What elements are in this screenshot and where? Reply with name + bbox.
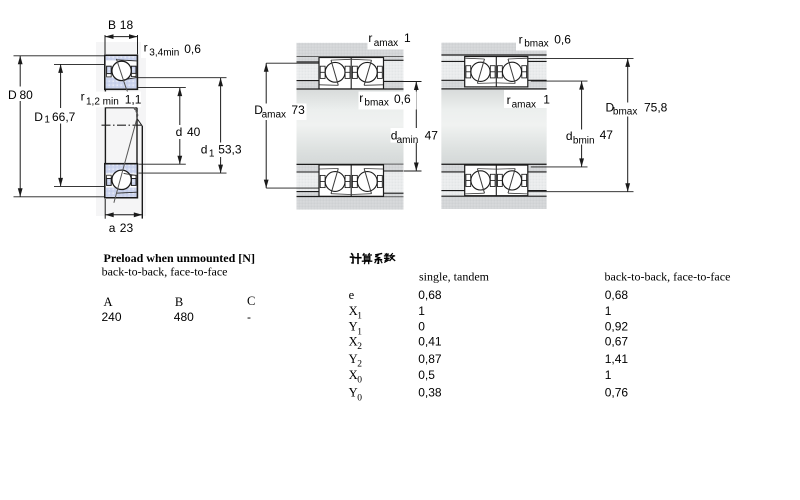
svg-text:bmin: bmin bbox=[573, 136, 595, 147]
svg-text:d: d bbox=[176, 125, 183, 139]
svg-text:amax: amax bbox=[512, 99, 536, 110]
svg-text:-: - bbox=[247, 310, 251, 324]
svg-text:bmax: bmax bbox=[524, 39, 548, 50]
svg-text:3,4min: 3,4min bbox=[149, 47, 179, 58]
svg-text:a: a bbox=[109, 221, 116, 235]
svg-text:r: r bbox=[368, 31, 372, 45]
svg-text:0,68: 0,68 bbox=[418, 288, 442, 302]
svg-text:0,41: 0,41 bbox=[418, 335, 442, 349]
svg-text:40: 40 bbox=[187, 125, 201, 139]
svg-text:1: 1 bbox=[357, 327, 362, 337]
svg-text:240: 240 bbox=[102, 310, 122, 324]
svg-text:r: r bbox=[507, 93, 511, 107]
svg-text:1: 1 bbox=[209, 148, 215, 159]
svg-text:80: 80 bbox=[20, 88, 34, 102]
svg-text:r: r bbox=[81, 90, 85, 104]
svg-text:B: B bbox=[108, 18, 116, 32]
svg-text:bmax: bmax bbox=[613, 107, 637, 118]
svg-text:1: 1 bbox=[605, 304, 612, 318]
svg-text:B: B bbox=[175, 295, 183, 309]
svg-text:amin: amin bbox=[397, 135, 419, 146]
svg-text:75,8: 75,8 bbox=[644, 100, 668, 114]
svg-text:r: r bbox=[144, 41, 148, 55]
svg-text:0,92: 0,92 bbox=[605, 320, 629, 334]
svg-text:53,3: 53,3 bbox=[218, 143, 242, 157]
svg-text:0: 0 bbox=[357, 376, 362, 386]
svg-text:0,38: 0,38 bbox=[418, 386, 442, 400]
svg-text:1: 1 bbox=[543, 93, 550, 107]
svg-text:X: X bbox=[349, 335, 358, 349]
svg-text:back-to-back, face-to-face: back-to-back, face-to-face bbox=[605, 270, 731, 284]
svg-text:e: e bbox=[349, 288, 355, 302]
svg-text:1: 1 bbox=[44, 115, 50, 126]
svg-text:Y: Y bbox=[349, 386, 358, 400]
svg-text:1,1: 1,1 bbox=[125, 93, 142, 107]
svg-text:0,6: 0,6 bbox=[554, 32, 571, 46]
svg-text:0,67: 0,67 bbox=[605, 335, 629, 349]
svg-text:0,5: 0,5 bbox=[418, 368, 435, 382]
svg-text:1,41: 1,41 bbox=[605, 352, 629, 366]
svg-text:73: 73 bbox=[291, 103, 305, 117]
svg-text:bmax: bmax bbox=[364, 98, 388, 109]
svg-text:back-to-back, face-to-face: back-to-back, face-to-face bbox=[102, 264, 228, 278]
svg-text:0: 0 bbox=[357, 393, 362, 403]
svg-text:0,6: 0,6 bbox=[394, 92, 411, 106]
svg-text:Preload when unmounted [N]: Preload when unmounted [N] bbox=[104, 251, 255, 265]
svg-text:X: X bbox=[349, 304, 358, 318]
svg-text:1: 1 bbox=[418, 304, 425, 318]
svg-text:X: X bbox=[349, 368, 358, 382]
svg-text:r: r bbox=[519, 32, 523, 46]
svg-text:A: A bbox=[104, 295, 113, 309]
svg-text:D: D bbox=[34, 110, 43, 124]
svg-text:r: r bbox=[359, 91, 363, 105]
svg-text:amax: amax bbox=[262, 110, 286, 121]
svg-text:47: 47 bbox=[600, 128, 614, 142]
svg-text:23: 23 bbox=[120, 221, 134, 235]
svg-text:C: C bbox=[247, 294, 255, 308]
svg-text:single, tandem: single, tandem bbox=[419, 270, 490, 284]
svg-text:480: 480 bbox=[174, 310, 194, 324]
svg-text:47: 47 bbox=[425, 129, 439, 143]
svg-text:1: 1 bbox=[404, 31, 411, 45]
svg-text:Y: Y bbox=[349, 352, 358, 366]
svg-text:0,6: 0,6 bbox=[184, 42, 201, 56]
svg-text:0,68: 0,68 bbox=[605, 288, 629, 302]
svg-text:0: 0 bbox=[418, 320, 425, 334]
svg-text:Y: Y bbox=[349, 320, 358, 334]
svg-text:2: 2 bbox=[357, 360, 362, 370]
svg-text:0,87: 0,87 bbox=[418, 352, 442, 366]
svg-text:1: 1 bbox=[605, 368, 612, 382]
svg-text:66,7: 66,7 bbox=[52, 110, 76, 124]
svg-text:d: d bbox=[201, 143, 208, 157]
svg-text:18: 18 bbox=[120, 18, 134, 32]
svg-text:amax: amax bbox=[374, 38, 398, 49]
svg-text:2: 2 bbox=[357, 342, 362, 352]
svg-text:1: 1 bbox=[357, 312, 362, 322]
svg-text:0,76: 0,76 bbox=[605, 386, 629, 400]
svg-text:d: d bbox=[566, 129, 573, 143]
svg-text:D: D bbox=[8, 88, 17, 102]
svg-text:1,2 min: 1,2 min bbox=[86, 96, 119, 107]
